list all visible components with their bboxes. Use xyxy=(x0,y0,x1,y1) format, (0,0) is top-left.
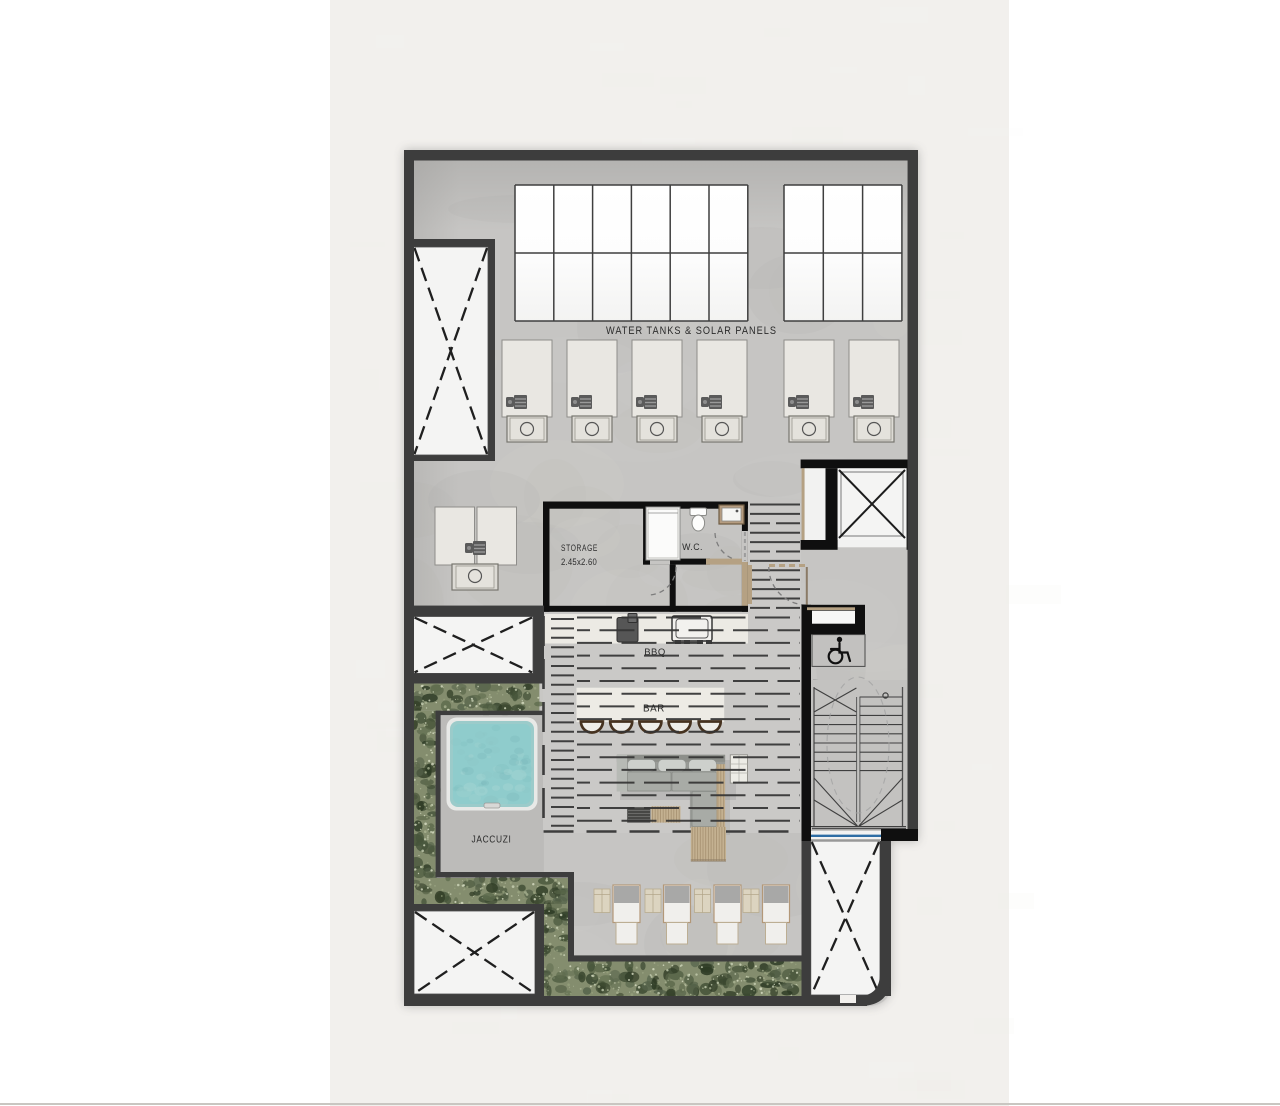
svg-text:STORAGE: STORAGE xyxy=(561,543,598,553)
svg-text:BBQ: BBQ xyxy=(644,647,666,658)
svg-text:BAR: BAR xyxy=(643,704,665,715)
svg-text:JACCUZI: JACCUZI xyxy=(472,834,512,846)
svg-text:2.45x2.60: 2.45x2.60 xyxy=(561,557,597,567)
svg-text:WATER TANKS & SOLAR PANELS: WATER TANKS & SOLAR PANELS xyxy=(606,325,777,337)
svg-text:W.C.: W.C. xyxy=(682,542,703,552)
